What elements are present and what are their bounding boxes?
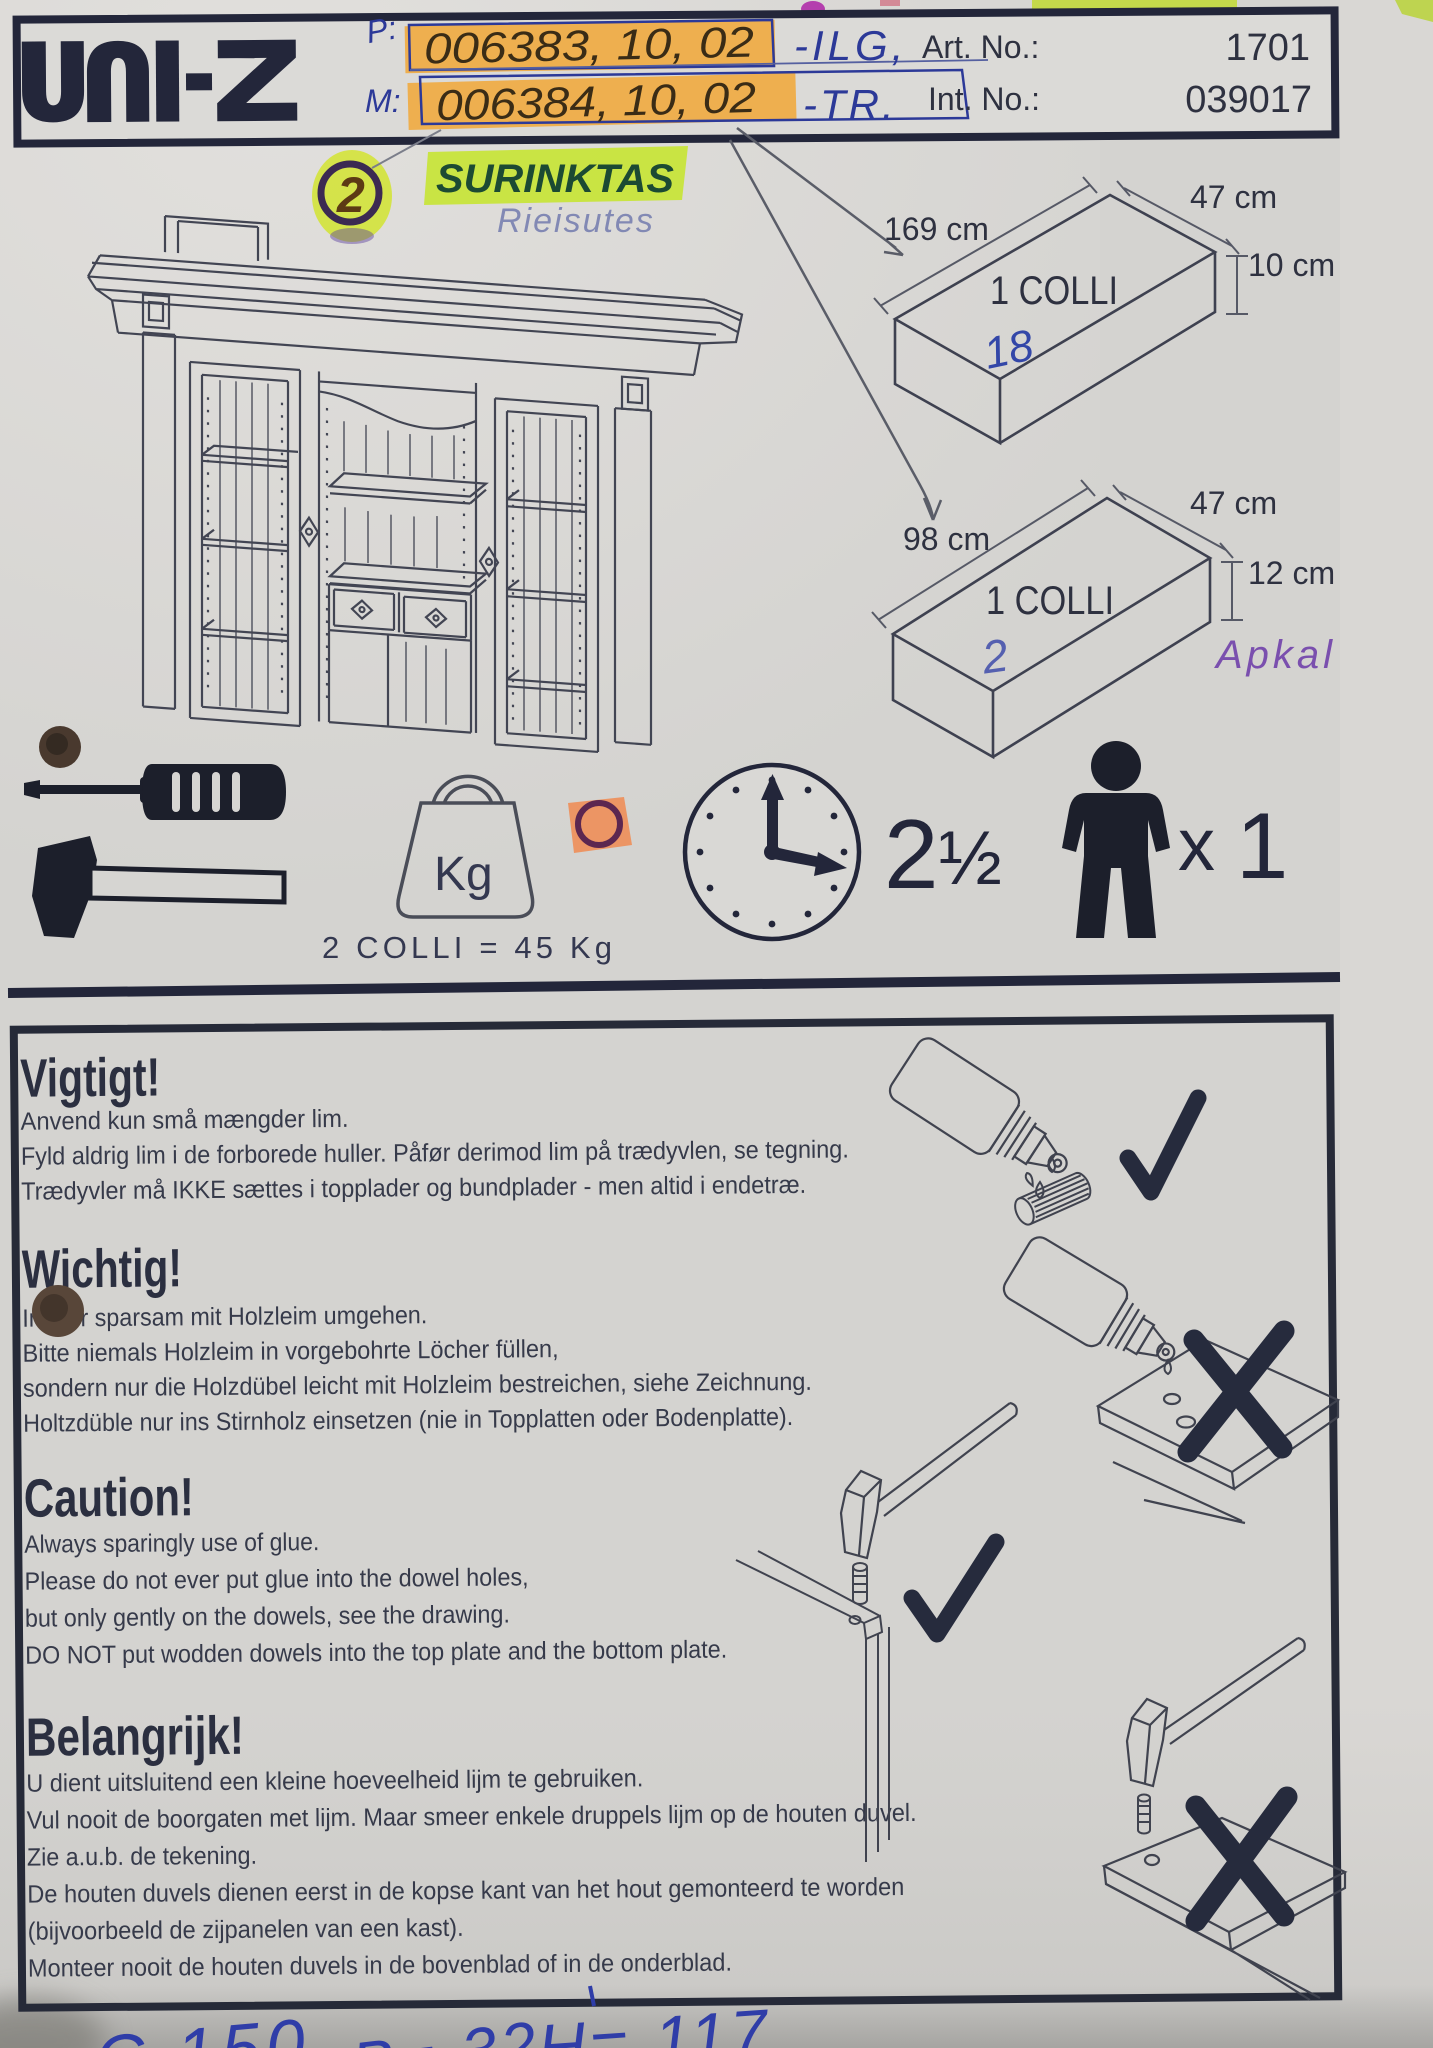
svg-text:P:: P: — [363, 9, 399, 50]
svg-text:Vigtigt!: Vigtigt! — [20, 1047, 161, 1108]
svg-text:2½: 2½ — [884, 799, 1002, 909]
svg-text:Int. No.:: Int. No.: — [928, 81, 1040, 117]
svg-text:006383, 10, 02: 006383, 10, 02 — [424, 19, 755, 74]
svg-text:Rieisutes: Rieisutes — [497, 202, 655, 240]
svg-text:Belangrijk!: Belangrijk! — [26, 1706, 245, 1768]
svg-text:2: 2 — [336, 167, 365, 223]
svg-text:but only gently on the dowels,: but only gently on the dowels, see the d… — [25, 1600, 510, 1632]
svg-text:1 COLLI: 1 COLLI — [986, 579, 1114, 623]
svg-text:Zie a.u.b. de tekening.: Zie a.u.b. de tekening. — [27, 1842, 257, 1872]
svg-text:1 COLLI: 1 COLLI — [990, 269, 1118, 313]
svg-text:SURINKTAS: SURINKTAS — [436, 157, 674, 201]
svg-text:Bitte niemals Holzleim in vorg: Bitte niemals Holzleim in vorgebohrte Lö… — [22, 1335, 558, 1368]
svg-text:-ILG,: -ILG, — [794, 22, 907, 69]
svg-text:1701: 1701 — [1225, 27, 1310, 69]
svg-text:-TR.: -TR. — [803, 81, 897, 128]
svg-text:Kg: Kg — [434, 848, 493, 901]
svg-text:x: x — [1178, 803, 1215, 886]
svg-text:Caution!: Caution! — [24, 1467, 195, 1528]
svg-text:47 cm: 47 cm — [1190, 485, 1277, 521]
svg-text:(bijvoorbeeld de zijpanelen va: (bijvoorbeeld de zijpanelen van een kast… — [28, 1914, 464, 1946]
svg-text:Art. No.:: Art. No.: — [922, 29, 1039, 65]
svg-text:U dient uitsluitend een kleine: U dient uitsluitend een kleine hoeveelhe… — [26, 1764, 643, 1797]
svg-text:M:: M: — [365, 83, 401, 119]
svg-text:98 cm: 98 cm — [903, 521, 990, 557]
svg-text:039017: 039017 — [1185, 79, 1312, 121]
svg-text:12 cm: 12 cm — [1248, 555, 1335, 591]
svg-text:1: 1 — [1236, 793, 1288, 898]
svg-text:Apkal: Apkal — [1214, 633, 1336, 677]
svg-text:006384, 10, 02: 006384, 10, 02 — [435, 74, 756, 130]
svg-text:10 cm: 10 cm — [1248, 247, 1335, 283]
svg-text:Anvend kun små mængder lim.: Anvend kun små mængder lim. — [20, 1105, 348, 1136]
svg-text:47 cm: 47 cm — [1190, 179, 1277, 215]
svg-text:169 cm: 169 cm — [884, 211, 989, 247]
svg-text:Please do not ever put glue in: Please do not ever put glue into the dow… — [24, 1563, 528, 1595]
svg-text:Always sparingly use of glue.: Always sparingly use of glue. — [24, 1528, 319, 1559]
